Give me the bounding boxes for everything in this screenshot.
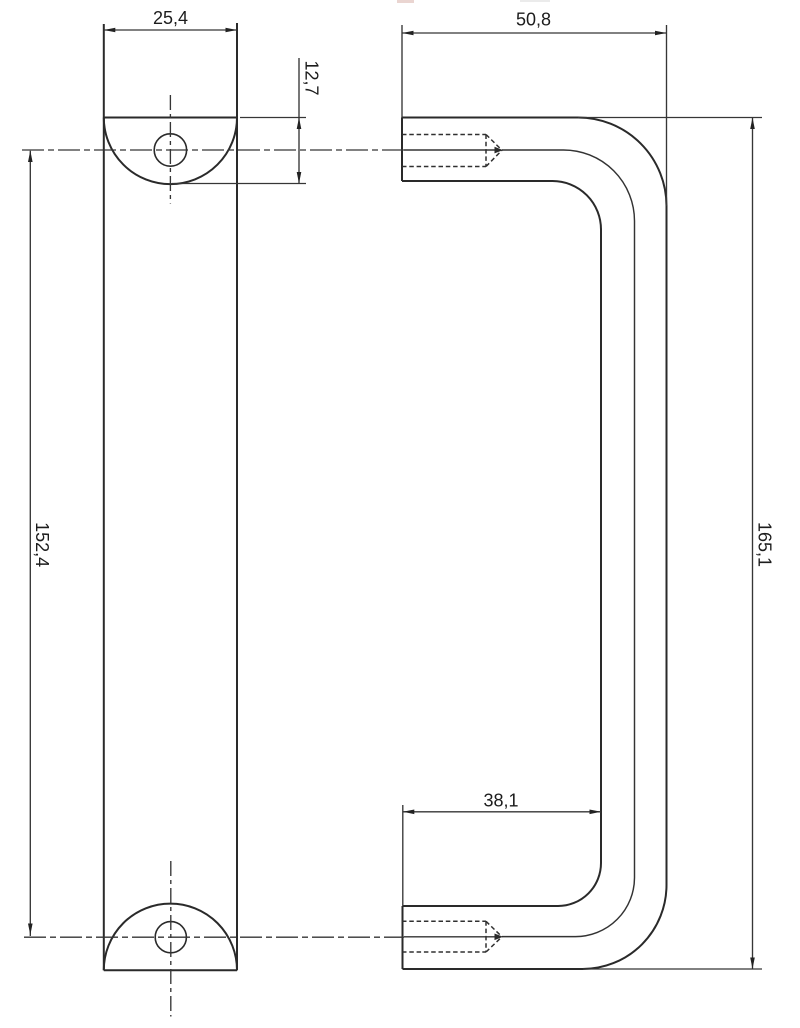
svg-text:12,7: 12,7 bbox=[302, 60, 322, 95]
svg-text:25,4: 25,4 bbox=[153, 8, 188, 28]
svg-text:50,8: 50,8 bbox=[516, 10, 551, 30]
svg-text:152,4: 152,4 bbox=[32, 522, 52, 567]
svg-text:38,1: 38,1 bbox=[483, 791, 518, 811]
svg-text:165,1: 165,1 bbox=[755, 522, 775, 567]
